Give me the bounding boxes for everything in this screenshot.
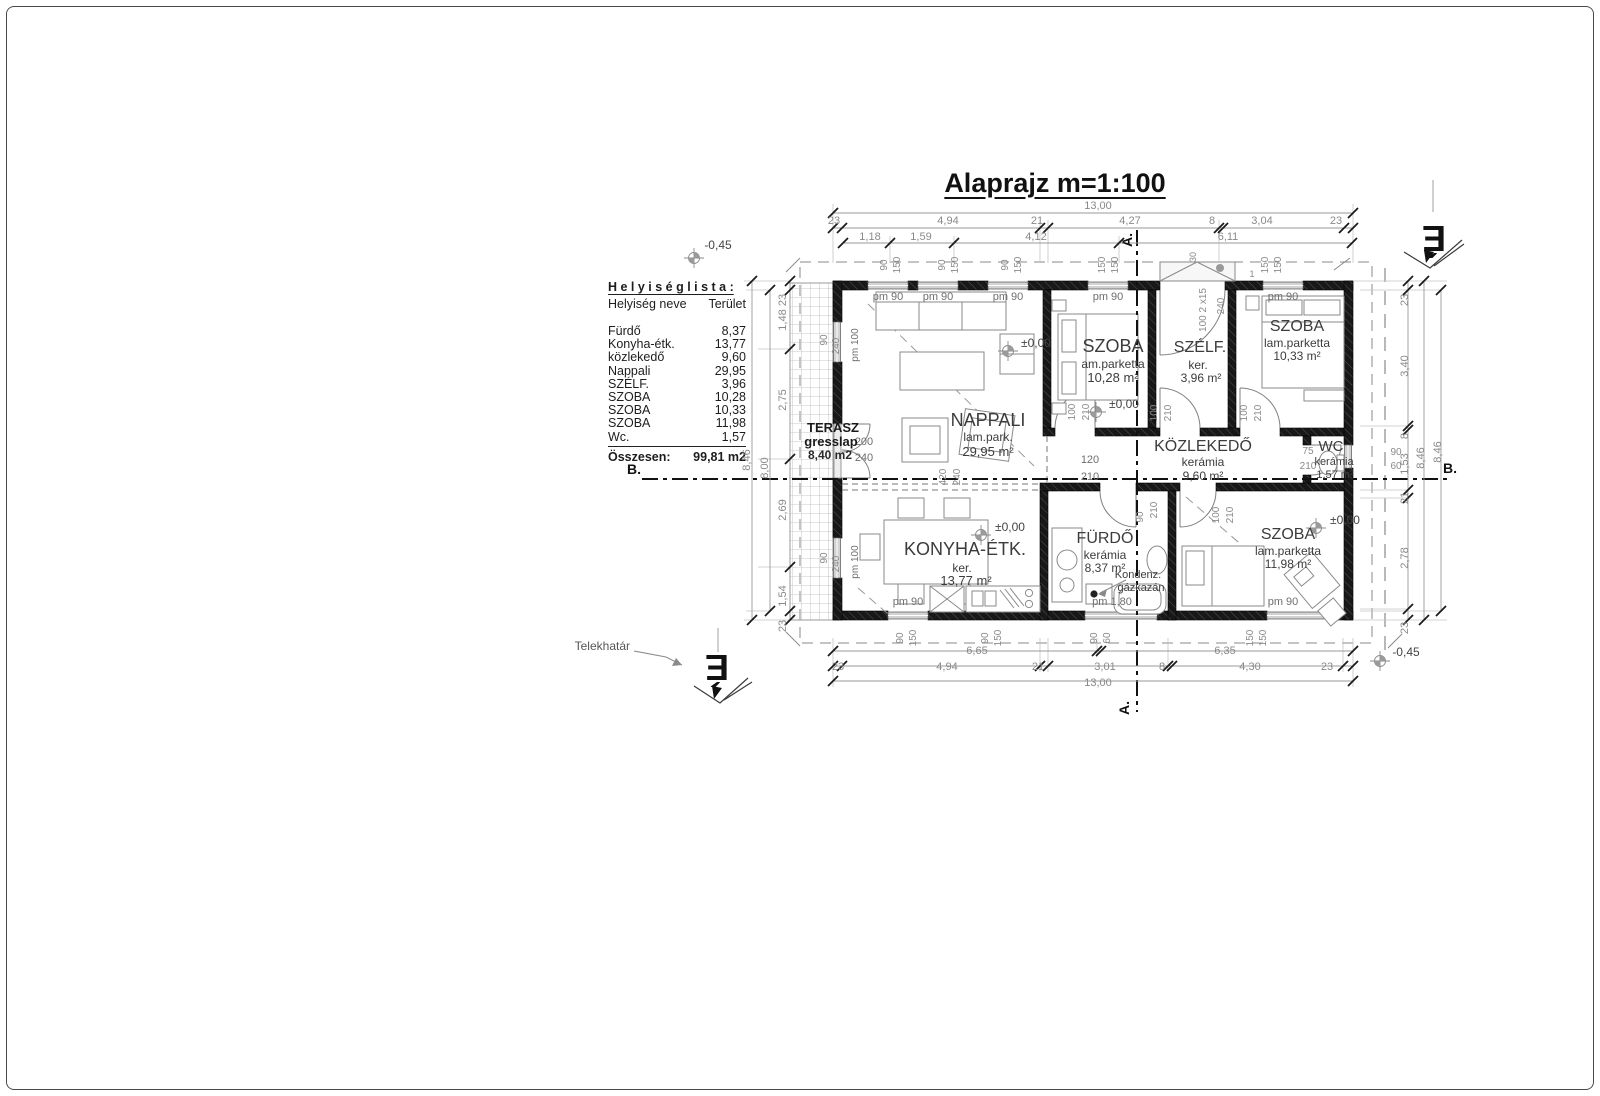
plan-text: lam.parketta — [1255, 544, 1321, 558]
plan-text: 150 — [892, 256, 903, 273]
plan-text: A. — [1119, 233, 1135, 247]
plan-text: 2,69 — [777, 499, 789, 520]
plan-text: Telekhatár — [575, 639, 630, 653]
plan-text: 29,95 m² — [962, 444, 1014, 459]
plan-text: 23 — [832, 661, 844, 673]
plan-text: TERASZ — [807, 420, 859, 435]
plan-text: 2,75 — [777, 389, 789, 410]
plan-text: 6,35 — [1214, 645, 1235, 657]
plan-text: 4,12 — [1025, 231, 1046, 243]
plan-text: 6,11 — [1218, 231, 1239, 243]
plan-text: -0,45 — [1392, 645, 1420, 659]
plan-text: pm 90 — [1268, 596, 1299, 608]
plan-text: É — [705, 647, 729, 688]
plan-text: 150 — [950, 256, 961, 273]
plan-text: 4,94 — [937, 215, 958, 227]
plan-text: 75 — [1302, 446, 1314, 457]
plan-text: 6,65 — [966, 645, 987, 657]
plan-text: FÜRDŐ — [1077, 528, 1134, 547]
plan-text: 120 — [1081, 454, 1099, 466]
plan-text: A. — [1116, 701, 1132, 715]
plan-text: ±0,00 — [1109, 397, 1139, 411]
plan-text: 90 — [1390, 447, 1402, 458]
plan-text: SZOBA — [1270, 318, 1325, 335]
plan-text: 23 — [777, 620, 789, 632]
plan-text: kerámia — [1314, 456, 1354, 468]
plan-text: 3,04 — [1251, 215, 1272, 227]
plan-text: lam.parketta — [1264, 336, 1330, 350]
plan-text: -0,45 — [704, 238, 732, 252]
plan-text: 210 — [1253, 404, 1264, 421]
plan-text: 210 — [1081, 471, 1099, 483]
plan-text: 10,33 m² — [1273, 349, 1320, 363]
plan-text: lam.park. — [963, 430, 1012, 444]
plan-text: 3,40 — [1399, 355, 1411, 376]
plan-text: 21 — [1399, 492, 1411, 504]
plan-text: NAPPALI — [951, 410, 1026, 430]
plan-text: 100 — [1211, 506, 1222, 523]
plan-text: pm 90 — [1268, 291, 1299, 303]
plan-text: pm 90 — [893, 596, 924, 608]
plan-text: 90 — [879, 259, 890, 271]
plan-text: 150 — [908, 629, 919, 646]
plan-text: 4,94 — [936, 661, 957, 673]
plan-text: 1 — [1249, 269, 1254, 279]
plan-text: 90 — [980, 632, 991, 644]
plan-text: 90 — [819, 334, 830, 346]
plan-text: 9,60 m² — [1183, 469, 1224, 483]
plan-text: 23 — [777, 294, 789, 306]
plan-text: SZOBA — [1261, 526, 1316, 543]
plan-text: 4,30 — [1239, 661, 1260, 673]
plan-text: 11,98 m² — [1265, 557, 1311, 571]
plan-text: WC — [1319, 438, 1344, 455]
plan-text: 1,57 m² — [1316, 469, 1354, 481]
plan-text: pm 90 — [923, 291, 954, 303]
plan-text: B. — [1443, 460, 1457, 476]
plan-text: 23 — [828, 215, 840, 227]
plan-text: 150 — [1097, 256, 1108, 273]
plan-text: 1,59 — [910, 231, 931, 243]
plan-text: 60 — [1102, 632, 1113, 644]
plan-text: kerámia — [1084, 548, 1127, 562]
plan-text: ±0,00 — [1330, 513, 1360, 527]
plan-text: 420 — [938, 468, 949, 485]
plan-text: pm 100 — [850, 545, 861, 579]
plan-text: 90 — [1089, 632, 1100, 644]
plan-text: Kondenz. — [1115, 569, 1161, 581]
plan-text: gázkazán — [1117, 582, 1164, 594]
plan-text: 8 — [1159, 661, 1165, 673]
plan-text: 240 — [1216, 297, 1227, 314]
plan-text: 1,18 — [859, 231, 880, 243]
plan-text: 210 — [1081, 403, 1092, 420]
plan-text: 210 — [1163, 404, 1174, 421]
plan-text: 10,28 m² — [1087, 370, 1139, 385]
plan-text: kerámia — [1182, 455, 1225, 469]
bathroom-door — [1100, 491, 1136, 527]
plan-text: 100 2 x15 — [1198, 288, 1209, 332]
plan-text: 240 — [831, 555, 842, 572]
plan-text: 1,48 — [777, 309, 789, 330]
plan-text: 2,78 — [1399, 547, 1411, 568]
plan-text: pm 1,80 — [1092, 596, 1132, 608]
plan-text: 23 — [1330, 215, 1342, 227]
plan-text: 21 — [1031, 215, 1043, 227]
plan-text: 100 — [1239, 404, 1250, 421]
plan-text: 100 — [1067, 403, 1078, 420]
plan-text: 150 — [1110, 256, 1121, 273]
plan-text: pm 90 — [1093, 291, 1124, 303]
plan-text: 210 — [1149, 501, 1160, 518]
plan-text: 150 — [1258, 629, 1269, 646]
plan-text: 30 — [1188, 252, 1198, 262]
plan-text: 13,00 — [1084, 677, 1112, 689]
plan-text: 150 — [1273, 256, 1284, 273]
plan-text: 210 — [1225, 506, 1236, 523]
plan-text: 1,54 — [777, 585, 789, 606]
plan-text: 90 — [1135, 511, 1146, 523]
entrance-column — [1216, 264, 1224, 272]
plan-text: 13,77 m² — [940, 573, 992, 588]
plan-text: 3,01 — [1094, 661, 1115, 673]
plan-text: 100 — [1149, 404, 1160, 421]
plan-text: 90 — [937, 259, 948, 271]
plan-text: 8,46 — [741, 449, 753, 470]
plan-text: 150 — [1013, 256, 1024, 273]
plan-text: pm 90 — [993, 291, 1024, 303]
plan-text: pm 100 — [850, 328, 861, 362]
plan-text: É — [1422, 218, 1446, 259]
plan-text: 8,00 — [759, 457, 771, 478]
plan-annotations: 13,00234,94214,2783,04231,181,594,126,11… — [575, 200, 1457, 715]
plan-text: SZOBA — [1082, 336, 1143, 356]
plan-text: 240 — [855, 452, 873, 464]
plan-text: 240 — [831, 337, 842, 354]
plan-text: 60 — [1390, 461, 1402, 472]
plan-text: ±0,00 — [1021, 336, 1051, 350]
plan-text: 8,46 — [1415, 447, 1427, 468]
plan-text: pm 90 — [873, 291, 904, 303]
plan-text: 4,27 — [1119, 215, 1140, 227]
plan-text: 150 — [993, 629, 1004, 646]
plan-text: 23 — [1321, 661, 1333, 673]
plan-text: 8 — [1209, 215, 1215, 227]
plan-text: KONYHA-ÉTK. — [904, 539, 1026, 559]
plan-text: gresslap — [804, 434, 858, 449]
plan-text: KÖZLEKEDŐ — [1154, 436, 1252, 455]
plan-text: 150 — [1260, 256, 1271, 273]
plan-text: 8 — [1399, 433, 1411, 439]
plan-text: 90 — [1000, 259, 1011, 271]
plan-text: 150 — [1245, 629, 1256, 646]
plan-text: 240 — [952, 468, 963, 485]
plan-text: 21 — [1032, 661, 1044, 673]
plan-text: 23 — [1399, 622, 1411, 634]
plan-text: B. — [627, 461, 641, 477]
plan-text: ±0,00 — [995, 520, 1025, 534]
plan-text: 90 — [819, 552, 830, 564]
plan-text: 3,96 m² — [1181, 371, 1222, 385]
plan-text: 13,00 — [1084, 200, 1112, 212]
plan-text: SZÉLF. — [1174, 337, 1226, 356]
plan-text: am.parketta — [1081, 357, 1145, 371]
plan-text: 90 — [895, 632, 906, 644]
plan-text: 23 — [1399, 294, 1411, 306]
drawing-sheet: Alaprajz m=1:100 H e l y i s é g l i s t… — [0, 0, 1600, 1096]
plan-text: ker. — [1188, 358, 1207, 372]
floor-plan-canvas: 13,00234,94214,2783,04231,181,594,126,11… — [0, 0, 1600, 1096]
plan-text: 8,40 m2 — [808, 448, 852, 462]
